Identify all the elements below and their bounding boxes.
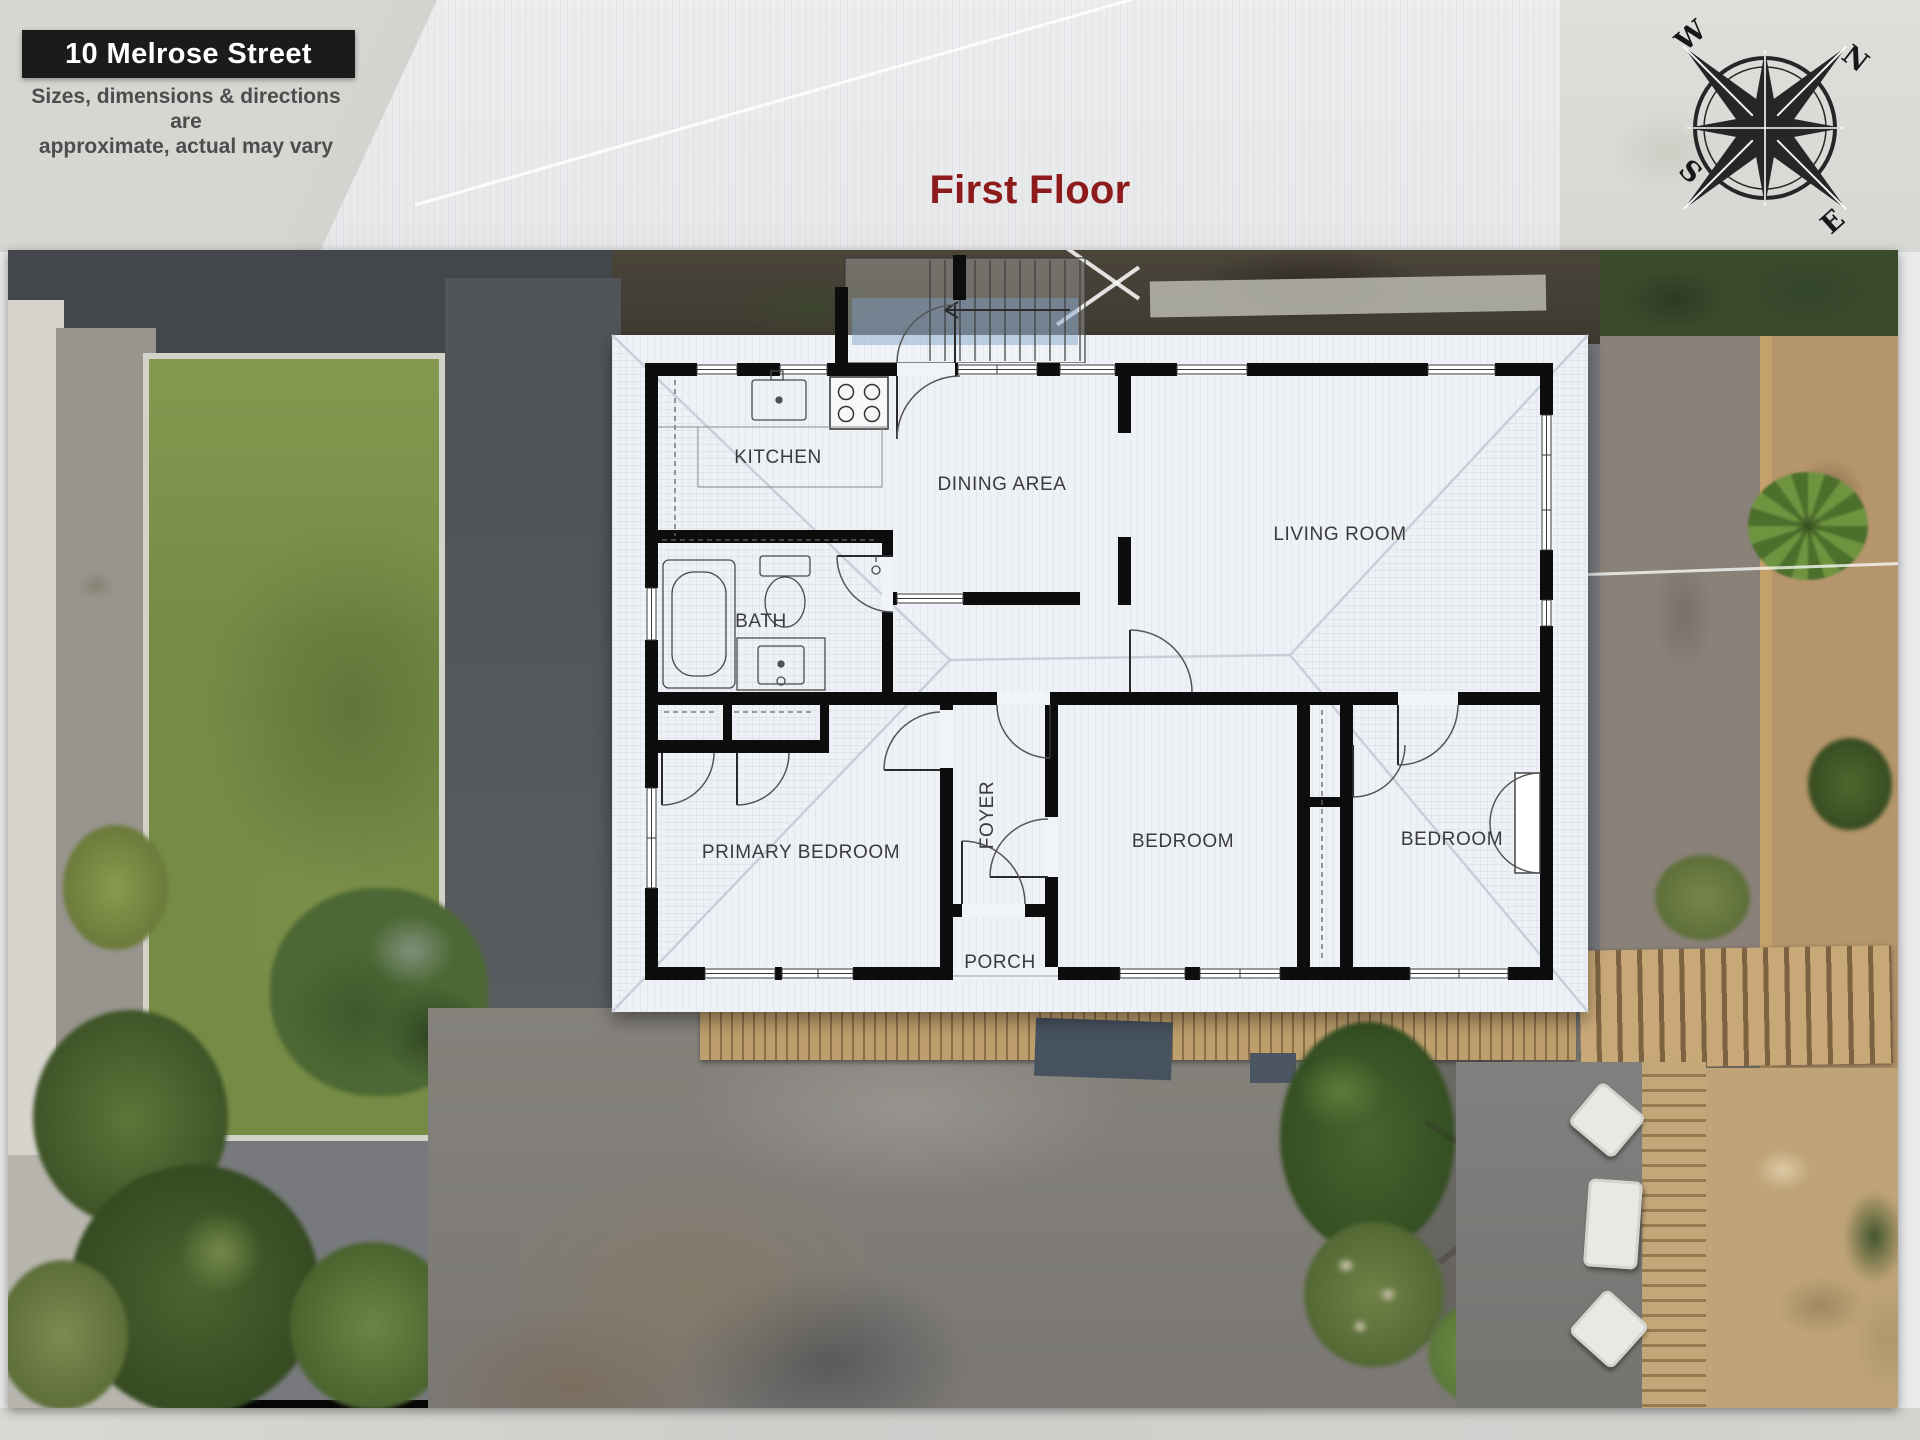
deck-boardwalk [1642, 1062, 1706, 1408]
room-label-porch: PORCH [964, 952, 1036, 974]
aerial-photo-frame: KITCHEN DINING AREA LIVING ROOM BATH FOY… [8, 250, 1898, 1408]
floor-title: First Floor [830, 168, 1230, 213]
floorplan-drawing [600, 250, 1600, 1040]
tap-icon [872, 566, 880, 574]
courtyard-hedge [1280, 1022, 1455, 1252]
address-banner: 10 Melrose Street [22, 30, 355, 78]
blue-tarp-small [1250, 1053, 1296, 1083]
disclaimer-line-1: Sizes, dimensions & directions are [28, 84, 344, 134]
room-label-bath: BATH [735, 611, 787, 633]
faded-bottom-strip [0, 1408, 1920, 1440]
room-label-bedroom-middle: BEDROOM [1132, 831, 1234, 853]
toilet-icon [760, 556, 810, 576]
room-label-bedroom-right: BEDROOM [1401, 829, 1503, 851]
wooden-steps [1579, 945, 1893, 1068]
bathtub-icon [663, 560, 735, 688]
room-label-living-room: LIVING ROOM [1273, 524, 1406, 546]
room-label-primary-bedroom: PRIMARY BEDROOM [702, 842, 900, 864]
disclaimer-line-2: approximate, actual may vary [28, 134, 344, 159]
flowering-shrub [1304, 1222, 1444, 1367]
compass: W N S E [1645, 8, 1885, 248]
fixtures [658, 371, 1058, 976]
outdoor-sofa [1583, 1178, 1643, 1270]
doors [662, 305, 1540, 904]
room-label-dining-area: DINING AREA [937, 474, 1066, 496]
trees-top-right [1600, 250, 1898, 340]
stove-icon [830, 377, 888, 429]
shrub [1655, 855, 1750, 940]
room-label-kitchen: KITCHEN [734, 447, 822, 469]
foliage-bottom-right [1838, 1180, 1898, 1408]
property-address: 10 Melrose Street [65, 38, 312, 71]
room-label-foyer: FOYER [977, 781, 999, 849]
shrub [1808, 738, 1892, 830]
disclaimer: Sizes, dimensions & directions are appro… [28, 84, 344, 159]
rear-deck [835, 255, 1085, 375]
bush [63, 825, 168, 950]
